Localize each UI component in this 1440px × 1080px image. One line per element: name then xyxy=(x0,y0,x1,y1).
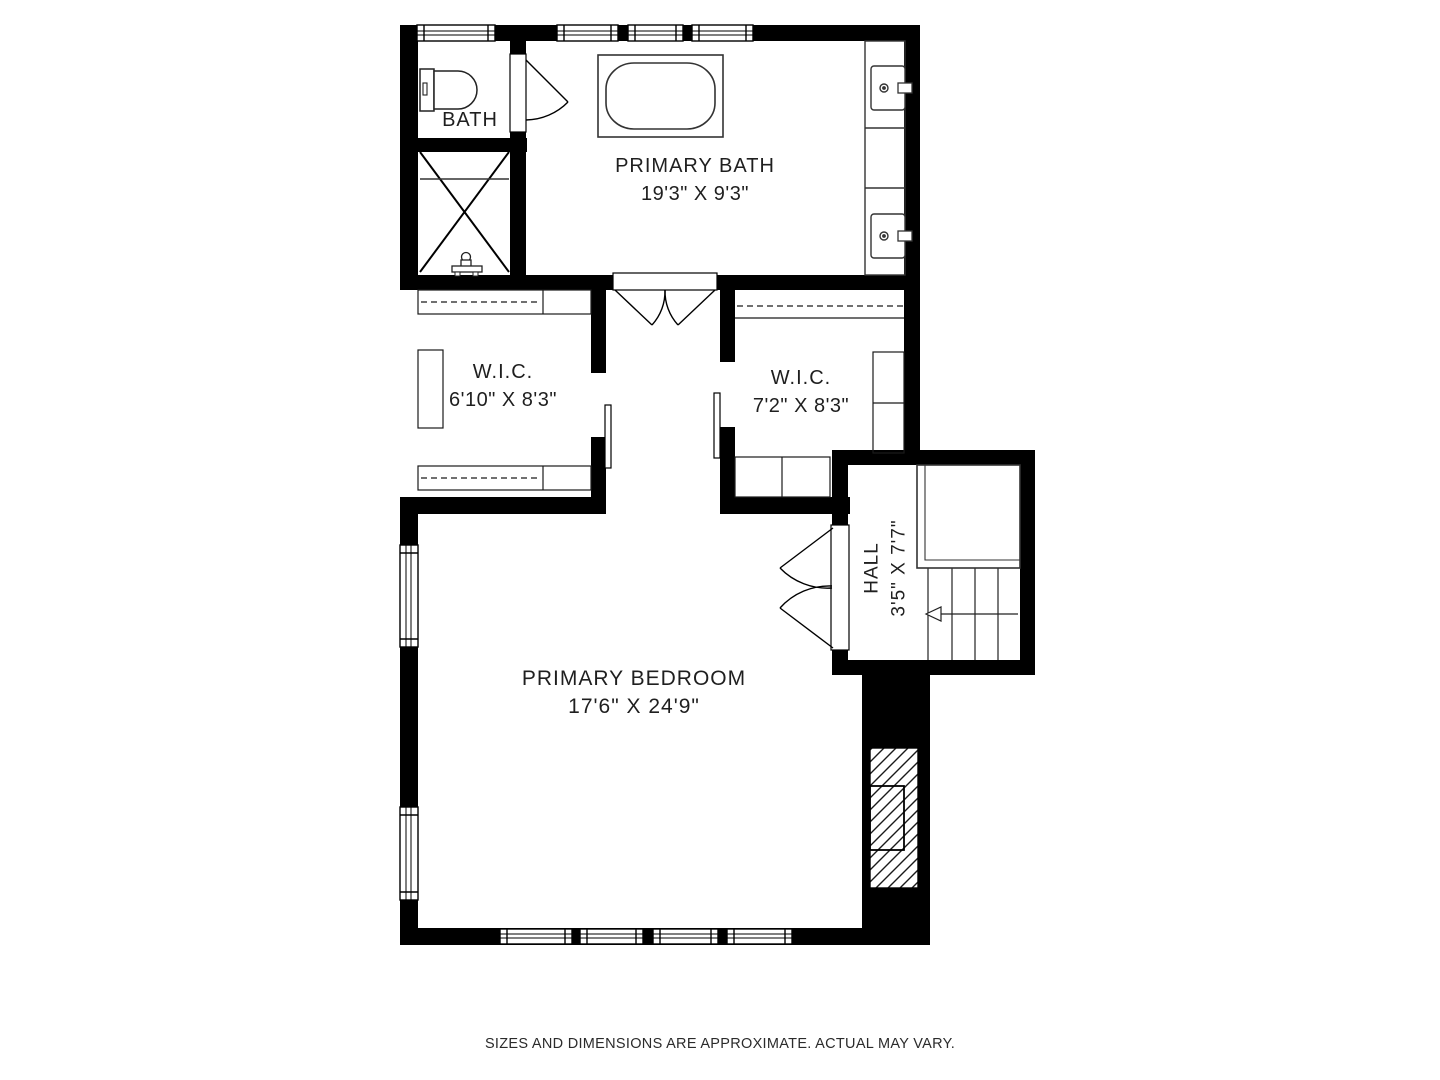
stairs xyxy=(917,465,1020,660)
room-label-hall: HALL xyxy=(862,542,883,594)
fireplace xyxy=(870,748,918,888)
doors xyxy=(510,54,849,650)
window xyxy=(500,929,572,944)
room-dims-primary-bath: 19'3" X 9'3" xyxy=(641,183,749,205)
window xyxy=(692,25,753,41)
bathtub-icon xyxy=(598,55,723,137)
pocket-door-left-wic xyxy=(605,405,611,468)
window xyxy=(417,25,495,41)
stair-landing xyxy=(917,465,1020,568)
room-label-primary-bedroom: PRIMARY BEDROOM xyxy=(522,667,746,690)
pocket-door-right-wic xyxy=(714,393,720,458)
door-double-bedroom-hall xyxy=(780,525,849,650)
vanity-sinks xyxy=(865,41,912,275)
room-label-wic-right: W.I.C. xyxy=(771,367,831,389)
window xyxy=(628,25,683,41)
window xyxy=(580,929,643,944)
disclaimer-text: SIZES AND DIMENSIONS ARE APPROXIMATE. AC… xyxy=(485,1036,955,1052)
shower-icon xyxy=(420,152,509,276)
room-dims-wic-right: 7'2" X 8'3" xyxy=(753,395,849,417)
stair-direction-arrow xyxy=(926,607,1018,621)
room-label-primary-bath: PRIMARY BATH xyxy=(615,155,775,177)
floor-plan-page: BATH PRIMARY BATH 19'3" X 9'3" W.I.C. 6'… xyxy=(0,0,1440,1080)
window xyxy=(653,929,718,944)
room-label-bath: BATH xyxy=(442,109,498,131)
room-dims-primary-bedroom: 17'6" X 24'9" xyxy=(568,695,700,718)
window xyxy=(400,545,418,647)
door-swing-bath xyxy=(510,54,568,132)
window xyxy=(557,25,618,41)
floor-plan-svg: BATH PRIMARY BATH 19'3" X 9'3" W.I.C. 6'… xyxy=(0,0,1440,1080)
room-dims-wic-left: 6'10" X 8'3" xyxy=(449,389,557,411)
shower-valve xyxy=(452,253,482,277)
room-dims-hall: 3'5" X 7'7" xyxy=(889,519,910,616)
window xyxy=(400,807,418,900)
toilet-icon xyxy=(420,69,477,111)
wic-left-shelf xyxy=(418,350,443,428)
door-double-bath-corridor xyxy=(613,273,717,325)
room-label-wic-left: W.I.C. xyxy=(473,361,533,383)
window xyxy=(727,929,792,944)
